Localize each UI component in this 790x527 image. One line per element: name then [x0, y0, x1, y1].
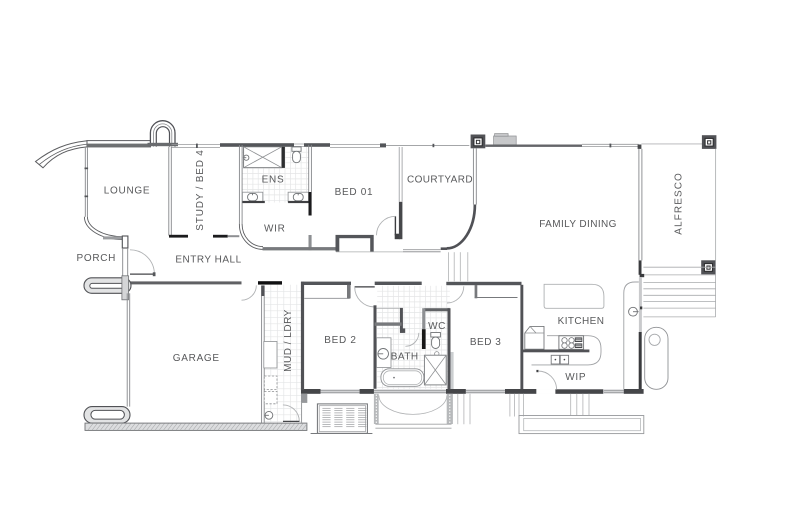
svg-text:ENS: ENS	[262, 175, 285, 186]
svg-text:BED 2: BED 2	[324, 335, 356, 346]
svg-text:KITCHEN: KITCHEN	[558, 316, 605, 327]
svg-text:FAMILY DINING: FAMILY DINING	[539, 219, 617, 230]
svg-text:STUDY / BED 4: STUDY / BED 4	[195, 149, 206, 230]
svg-text:ALFRESCO: ALFRESCO	[674, 172, 685, 235]
svg-text:BED 3: BED 3	[470, 337, 501, 348]
svg-text:LOUNGE: LOUNGE	[104, 186, 150, 197]
svg-text:BED 01: BED 01	[335, 187, 374, 198]
svg-text:GARAGE: GARAGE	[173, 353, 220, 364]
svg-text:BATH: BATH	[391, 352, 419, 363]
svg-text:WC: WC	[428, 321, 446, 332]
svg-text:WIP: WIP	[565, 372, 586, 383]
svg-text:PORCH: PORCH	[76, 253, 116, 264]
svg-text:COURTYARD: COURTYARD	[407, 175, 473, 186]
svg-text:MUD / LDRY: MUD / LDRY	[283, 309, 294, 372]
svg-text:ENTRY HALL: ENTRY HALL	[175, 255, 241, 266]
svg-text:WIR: WIR	[264, 224, 286, 235]
